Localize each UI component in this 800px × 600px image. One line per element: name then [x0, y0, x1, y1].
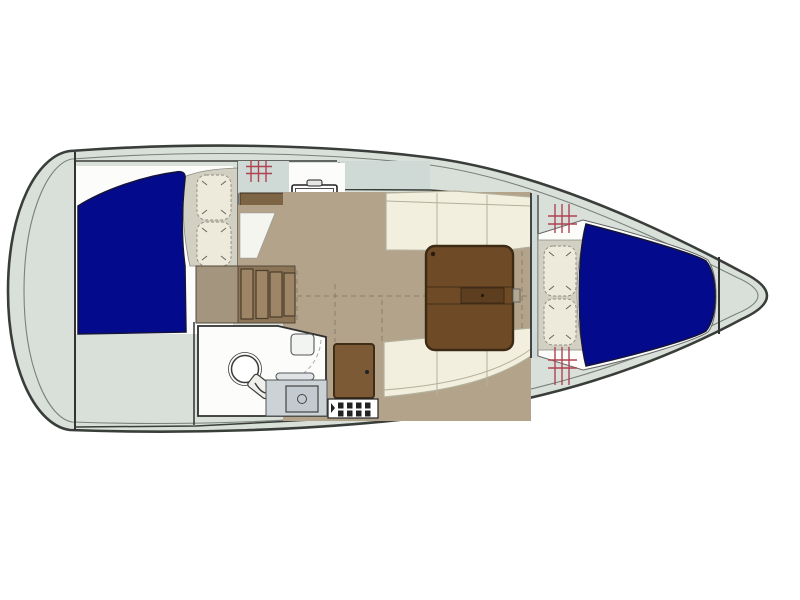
forward-bulkhead-band — [531, 193, 538, 358]
stove-handle — [307, 180, 322, 186]
v-berth — [579, 224, 715, 366]
vanity-rail — [276, 373, 314, 380]
boat-floor-plan — [0, 0, 800, 600]
door-handle — [365, 370, 369, 374]
vberth-pillow — [544, 299, 576, 345]
step-planks — [241, 269, 295, 319]
salon-table — [426, 246, 520, 350]
shower-mixer — [291, 334, 314, 355]
table-latch-dot — [481, 294, 484, 297]
table-leaf-latch — [513, 289, 520, 302]
table-corner-fitting — [431, 252, 435, 256]
vberth-pillow — [544, 246, 576, 296]
entry-step-grate — [328, 399, 378, 418]
galley-counter-band — [337, 161, 430, 189]
port-settee — [386, 191, 531, 251]
aft-pillow — [197, 175, 231, 220]
head-vanity-sink — [286, 386, 318, 412]
companionway-steps — [196, 266, 295, 323]
